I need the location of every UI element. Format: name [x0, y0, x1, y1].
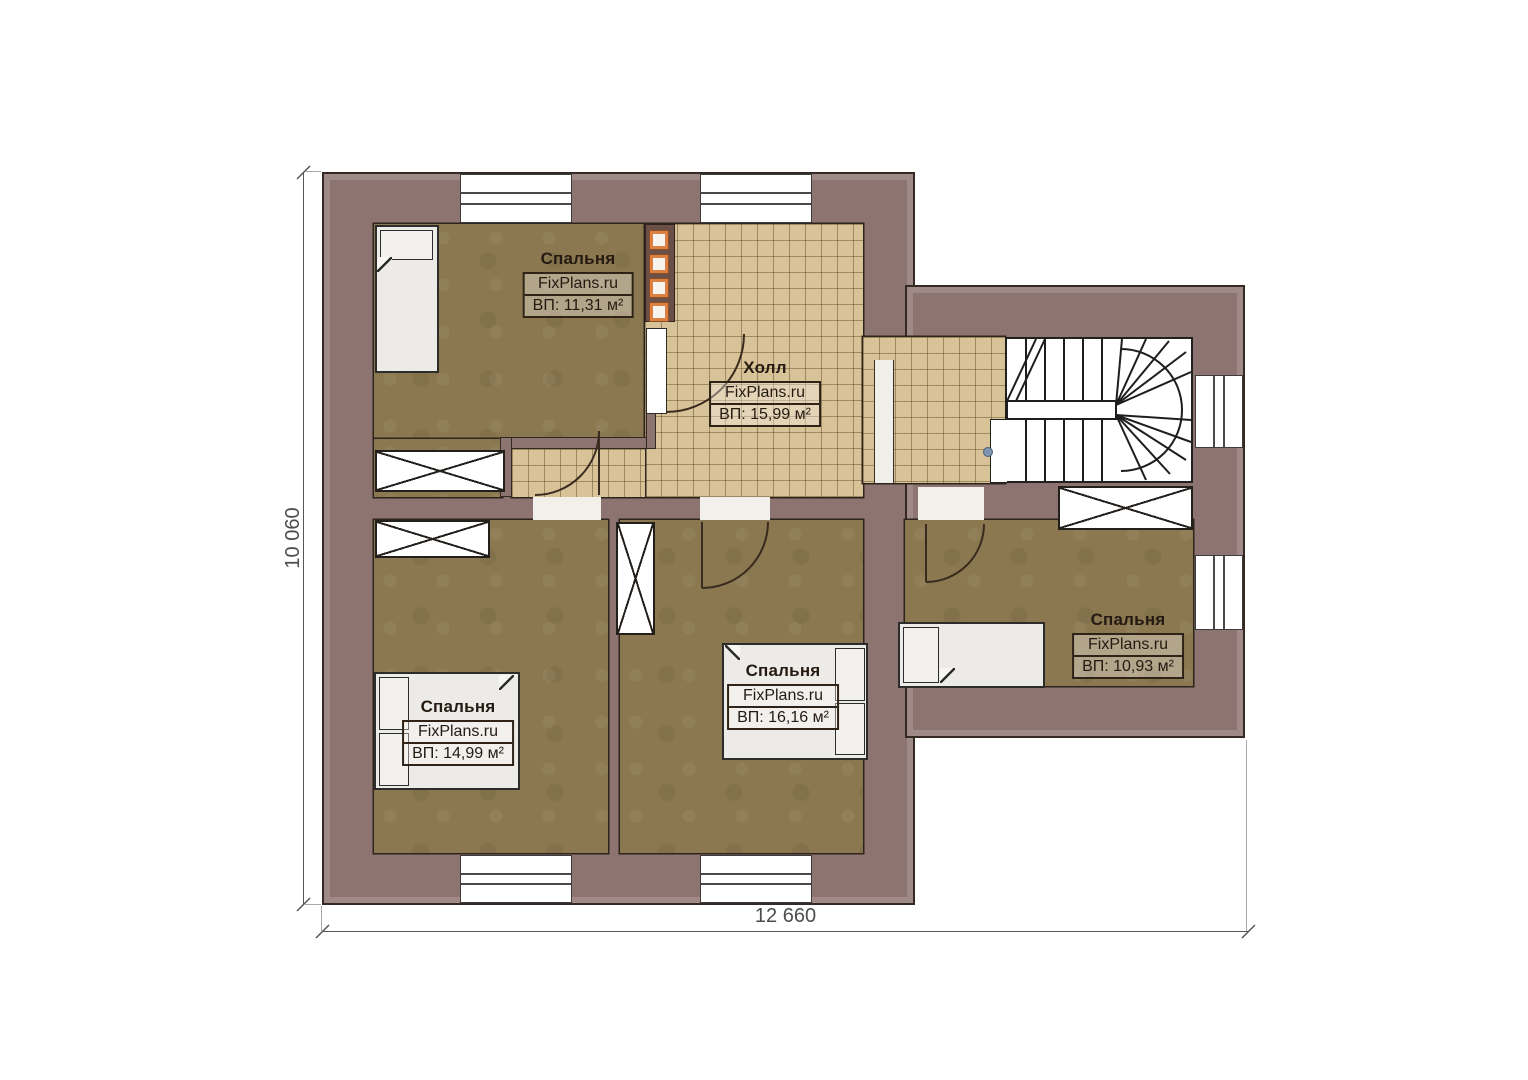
blanket-fold-icon: [725, 645, 740, 660]
window-top-2: [700, 174, 812, 223]
blanket-fold-icon: [940, 668, 955, 683]
dimension-line-width: [322, 931, 1249, 932]
watermark-text: FixPlans.ru: [729, 686, 837, 706]
shaft-box-bedroom-3: [616, 522, 655, 635]
wardrobe-box-bedroom-1: [375, 450, 505, 492]
extension-line: [1246, 740, 1247, 931]
room-info-box: FixPlans.ru ВП: 14,99 м²: [402, 720, 514, 766]
radiator-cell-icon: [650, 255, 668, 273]
room-label-bedroom-1: Спальня FixPlans.ru ВП: 11,31 м²: [523, 249, 634, 318]
door-opening-bedroom-3: [700, 497, 770, 520]
watermark-text: FixPlans.ru: [404, 722, 512, 742]
window-bottom-1: [460, 855, 572, 903]
interior-wall-step-h: [500, 437, 652, 449]
room-area-text: ВП: 15,99 м²: [711, 403, 819, 425]
wardrobe-box-bedroom-2: [375, 520, 490, 558]
single-bed-bedroom-1: [375, 225, 439, 373]
watermark-text: FixPlans.ru: [525, 274, 632, 294]
dimension-width-label: 12 660: [322, 905, 1249, 928]
extension-line: [305, 171, 321, 172]
single-bed-bedroom-4: [898, 622, 1045, 688]
hall-floor-left-nook: [512, 449, 645, 497]
watermark-text: FixPlans.ru: [711, 383, 819, 403]
room-info-box: FixPlans.ru ВП: 15,99 м²: [709, 381, 821, 427]
room-info-box: FixPlans.ru ВП: 16,16 м²: [727, 684, 839, 730]
room-area-text: ВП: 16,16 м²: [729, 706, 837, 728]
room-label-bedroom-4: Спальня FixPlans.ru ВП: 10,93 м²: [1072, 610, 1184, 679]
window-top-1: [460, 174, 572, 223]
window-right-bedroom: [1195, 555, 1243, 630]
door-opening-bedroom-4: [918, 487, 984, 520]
floor-plan: Спальня FixPlans.ru ВП: 11,31 м² Холл Fi…: [0, 0, 1528, 1080]
room-area-text: ВП: 11,31 м²: [525, 294, 632, 316]
radiator-cell-icon: [650, 303, 668, 321]
dimension-height-label: 10 060: [282, 498, 302, 578]
room-name: Спальня: [523, 249, 634, 269]
room-info-box: FixPlans.ru ВП: 11,31 м²: [523, 272, 634, 318]
blanket-fold-icon: [499, 675, 514, 690]
hall-passage-threshold: [874, 360, 894, 483]
radiator-cell-icon: [650, 231, 668, 249]
room-label-hall: Холл FixPlans.ru ВП: 15,99 м²: [709, 358, 821, 427]
radiator-strip: [645, 224, 675, 322]
door-opening-bedroom-2: [533, 497, 601, 520]
radiator-cell-icon: [650, 279, 668, 297]
room-area-text: ВП: 14,99 м²: [404, 742, 512, 764]
room-name: Спальня: [727, 661, 839, 681]
extension-line: [305, 904, 321, 905]
interior-wall-stub: [646, 410, 656, 449]
room-label-bedroom-2: Спальня FixPlans.ru ВП: 14,99 м²: [402, 697, 514, 766]
blanket-fold-icon: [377, 257, 392, 272]
room-name: Спальня: [1072, 610, 1184, 630]
stair-entry-marker: [983, 447, 993, 457]
door-leaf-bedroom-1: [646, 328, 667, 414]
watermark-text: FixPlans.ru: [1074, 635, 1182, 655]
pillow-icon: [903, 627, 939, 683]
pillow-icon: [380, 230, 433, 260]
pillow-icon: [835, 703, 865, 755]
room-name: Холл: [709, 358, 821, 378]
pillow-icon: [835, 648, 865, 701]
room-area-text: ВП: 10,93 м²: [1074, 655, 1182, 677]
room-info-box: FixPlans.ru ВП: 10,93 м²: [1072, 633, 1184, 679]
room-name: Спальня: [402, 697, 514, 717]
window-bottom-2: [700, 855, 812, 903]
window-right-stairs: [1195, 375, 1243, 448]
staircase-well: [1005, 337, 1193, 483]
room-label-bedroom-3: Спальня FixPlans.ru ВП: 16,16 м²: [727, 661, 839, 730]
wardrobe-box-bedroom-4: [1058, 486, 1193, 530]
